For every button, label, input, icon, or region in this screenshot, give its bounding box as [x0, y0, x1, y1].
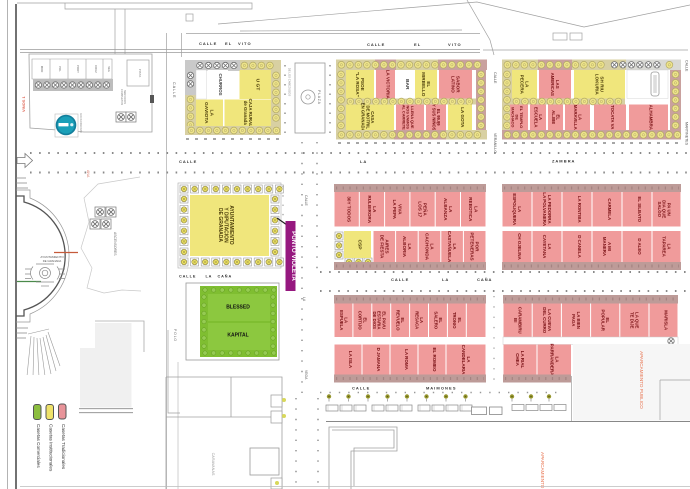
svg-text:POL: POL: [58, 66, 62, 72]
svg-text:APARCAMIENTO: APARCAMIENTO: [540, 452, 545, 489]
svg-text:LA ISLA: LA ISLA: [348, 351, 353, 369]
svg-text:ASCENSORES: ASCENSORES: [113, 232, 117, 256]
svg-text:LA RIALCHEA: LA RIALCHEA: [515, 351, 525, 369]
svg-text:C A Ñ A: C A Ñ A: [477, 277, 492, 282]
svg-text:LA PEDORRALA POLVANERA: LA PEDORRALA POLVANERA: [542, 192, 552, 227]
svg-text:V I T O: V I T O: [238, 41, 251, 46]
svg-text:LA VICTORIA: LA VICTORIA: [386, 70, 391, 100]
svg-text:SABORLATINO: SABORLATINO: [450, 76, 460, 93]
svg-text:C A L L E: C A L L E: [352, 386, 370, 391]
svg-text:VINOS 1: VINOS 1: [21, 95, 26, 112]
svg-text:APARCAMIENTO PUBLICO: APARCAMIENTO PUBLICO: [639, 351, 644, 409]
svg-text:L A: L A: [206, 275, 212, 279]
svg-text:C A L L E: C A L L E: [179, 275, 196, 279]
svg-text:D CANELA: D CANELA: [577, 235, 582, 258]
svg-text:D ALEO: D ALEO: [637, 238, 642, 255]
svg-text:Casetas Comerciales: Casetas Comerciales: [36, 424, 41, 468]
svg-text:MARTINETES: MARTINETES: [685, 122, 689, 146]
svg-text:LA QUETE DIJE: LA QUETE DIJE: [630, 312, 640, 329]
svg-text:DE LOS CABEZUDOS: DE LOS CABEZUDOS: [288, 68, 292, 97]
svg-text:C A L L E: C A L L E: [367, 42, 385, 47]
svg-text:Casetas Institucionales: Casetas Institucionales: [49, 424, 54, 472]
svg-text:Z A M B R A: Z A M B R A: [552, 159, 575, 164]
svg-text:PEÑALOS 17: PEÑALOS 17: [418, 201, 429, 217]
svg-text:ROCKODROMO: ROCKODROMO: [79, 113, 83, 132]
svg-text:CSP: CSP: [357, 239, 363, 250]
svg-text:CAJA RURALde Granada: CAJA RURALde Granada: [243, 99, 253, 128]
svg-text:C A Ñ A: C A Ñ A: [218, 274, 232, 279]
svg-text:E L: E L: [414, 42, 421, 47]
svg-text:DE GRANADA: DE GRANADA: [43, 259, 62, 263]
svg-text:CHURROS: CHURROS: [218, 73, 223, 95]
svg-text:PA UNDIA QUESALGO: PA UNDIA QUESALGO: [657, 200, 672, 218]
svg-text:LA: LA: [302, 297, 306, 302]
svg-text:LA GOTA: LA GOTA: [460, 107, 465, 128]
svg-text:CH OJELINA: CH OJELINA: [517, 233, 522, 260]
svg-text:EL SILBATO: EL SILBATO: [637, 196, 642, 222]
svg-text:CALLE: CALLE: [493, 72, 497, 84]
svg-text:SEG: SEG: [107, 66, 111, 71]
svg-text:LA CUEVADEL CURRO: LA CUEVADEL CURRO: [542, 307, 552, 334]
svg-text:EL ROMEO: EL ROMEO: [432, 348, 437, 372]
svg-text:CARMELA: CARMELA: [607, 198, 612, 221]
svg-text:LA BIENPAGA: LA BIENPAGA: [571, 312, 581, 329]
svg-text:CALLE: CALLE: [685, 60, 689, 72]
svg-text:CARAVANAS: CARAVANAS: [211, 453, 215, 476]
svg-text:PROT: PROT: [76, 65, 80, 73]
svg-text:AYUNTAMIENTOY DIPUTACIONDE GRA: AYUNTAMIENTOY DIPUTACIONDE GRANADA: [217, 205, 234, 244]
svg-text:E L: E L: [225, 41, 232, 46]
svg-text:VERANILLO: VERANILLO: [493, 133, 497, 153]
svg-text:EL PAVUESTARIADE DIOS: EL PAVUESTARIADE DIOS: [372, 311, 386, 329]
svg-text:PUNTO VIOLETA: PUNTO VIOLETA: [290, 231, 297, 281]
svg-text:D JAMANA: D JAMANA: [376, 348, 381, 373]
svg-text:SERVICIOSCOMPLETOS: SERVICIOSCOMPLETOS: [120, 89, 127, 106]
svg-text:VEGA: VEGA: [304, 370, 308, 380]
svg-text:MARISLA: MARISLA: [664, 310, 669, 331]
svg-text:ALHAMBRA: ALHAMBRA: [649, 105, 654, 131]
svg-text:LLENA QUENOS VAMOSAL CARRETE: LLENA QUENOS VAMOSAL CARRETE: [401, 105, 415, 130]
svg-text:BLESSED: BLESSED: [226, 305, 250, 311]
svg-text:LA RONTIBA: LA RONTIBA: [577, 196, 582, 224]
svg-text:30Y TODOS: 30Y TODOS: [347, 196, 352, 222]
svg-text:CRUZ: CRUZ: [94, 65, 98, 73]
svg-text:Casetas Tradicionales: Casetas Tradicionales: [61, 424, 66, 470]
svg-text:M A I M O N E S: M A I M O N E S: [426, 386, 456, 391]
svg-text:MOD: MOD: [40, 66, 44, 73]
svg-text:L A: L A: [360, 159, 366, 164]
svg-text:C A L L E: C A L L E: [391, 277, 409, 282]
svg-text:P O L O: P O L O: [173, 329, 177, 341]
svg-text:BAR: BAR: [404, 79, 410, 90]
svg-text:V I T O: V I T O: [448, 42, 461, 47]
svg-text:L A: L A: [442, 277, 448, 282]
svg-text:C A L L E: C A L L E: [179, 159, 197, 164]
svg-text:PISTA: PISTA: [138, 69, 142, 77]
svg-text:U GT: U GT: [254, 79, 260, 91]
svg-text:C A L L E: C A L L E: [172, 82, 176, 98]
svg-text:CALLE: CALLE: [304, 195, 308, 206]
svg-text:TOCATA VA: TOCATA VA: [610, 105, 615, 130]
svg-text:LA ROMA: LA ROMA: [404, 349, 409, 371]
svg-text:ANA: ANA: [86, 170, 90, 178]
svg-text:P L A Z A: P L A Z A: [317, 90, 321, 104]
svg-text:KAPITAL: KAPITAL: [227, 333, 248, 339]
svg-text:C A L L E: C A L L E: [199, 41, 217, 46]
